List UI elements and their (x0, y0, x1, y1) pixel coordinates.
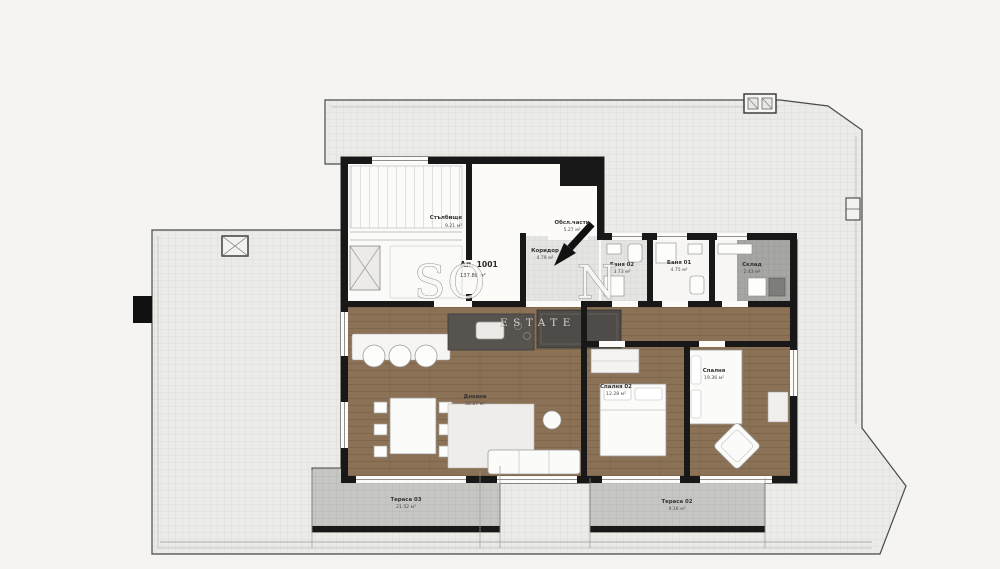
sink (688, 244, 702, 254)
bath-01-label: Баня 01 (667, 260, 692, 266)
living-room-label: Дневна (464, 394, 487, 400)
bar-stool (363, 345, 385, 367)
storage-label: Склад (742, 262, 762, 268)
terrace-02-label: Тераса 02 (661, 499, 692, 505)
shelf (718, 244, 752, 254)
watermark-estate-text: ESTATE (500, 317, 576, 329)
corridor-label: Коридор (531, 248, 559, 254)
bedroom-01-area: 19.36 м² (704, 375, 724, 381)
bath-01-area: 4.75 м² (671, 267, 688, 273)
floor-plan-page: Стълбище 9.21 м² Обсл.части 5.27 м² Кори… (0, 0, 1000, 569)
shaft-box (222, 236, 248, 256)
duct-shaft (560, 164, 597, 186)
living-room-area: 32.27 м² (465, 401, 485, 407)
chimney-block (133, 296, 152, 323)
bedroom-01-label: Спалня (703, 368, 726, 374)
roof-vent-box (744, 94, 776, 113)
sofa (488, 450, 580, 474)
corridor-area: 4.79 м² (537, 255, 554, 261)
bedroom-02-area: 12.28 м² (606, 391, 626, 397)
coffee-table (543, 411, 561, 429)
watermark-letters-left: SO (414, 255, 487, 309)
stairwell-area: 9.21 м² (445, 223, 462, 229)
watermark-letter-right: N (577, 255, 619, 309)
bedroom-02-label: Спалня 02 (600, 384, 632, 390)
bar-stool (389, 345, 411, 367)
service-area-area: 5.27 м² (564, 227, 581, 233)
service-area-label: Обсл.части (555, 219, 590, 226)
stairwell-label: Стълбище (430, 214, 463, 221)
dryer (769, 278, 785, 296)
dining-table (390, 398, 436, 454)
terrace-03-label: Тераса 03 (390, 497, 421, 503)
dresser (768, 392, 788, 422)
roof-chimney (846, 198, 860, 220)
pillow (635, 388, 662, 400)
pillow (691, 356, 701, 384)
floor-plan-canvas: Стълбище 9.21 м² Обсл.части 5.27 м² Кори… (0, 0, 1000, 569)
washing-machine (748, 278, 766, 296)
toilet (690, 276, 704, 294)
sink (607, 244, 621, 254)
terrace-03-area: 21.52 м² (396, 504, 416, 510)
storage-area: 2.43 м² (744, 269, 761, 275)
pillow (691, 390, 701, 418)
terrace-02-area: 9.16 м² (669, 506, 686, 512)
toilet (628, 244, 642, 262)
bar-stool (415, 345, 437, 367)
